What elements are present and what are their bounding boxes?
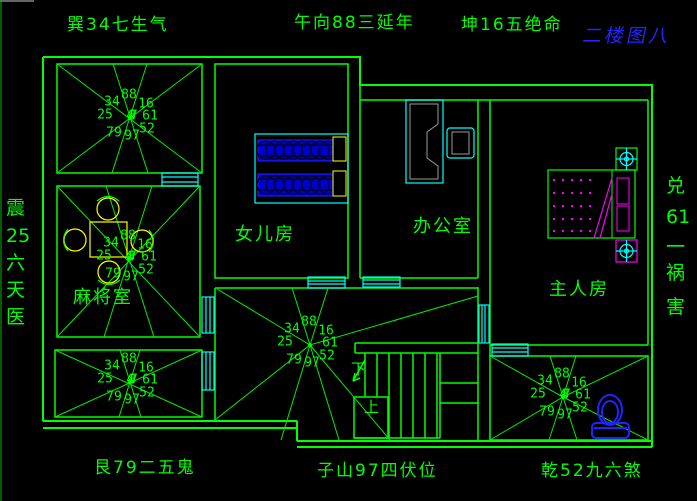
star-number: 97 — [124, 130, 140, 143]
star-number: 52 — [572, 402, 588, 415]
crosshair-icon — [616, 148, 637, 170]
stairs-down-label: 下 — [351, 362, 366, 377]
star-number: 52 — [138, 264, 154, 277]
star-number: 97 — [124, 394, 140, 407]
star-number: 97 — [123, 271, 139, 284]
star-number: 79 — [106, 391, 122, 404]
window-master-left — [479, 305, 489, 343]
room-label-office: 办公室 — [413, 218, 473, 236]
label-zhen-char: 医 — [6, 308, 25, 327]
star-number: 25 — [97, 373, 113, 386]
star-number: 88 — [121, 89, 137, 102]
room-label-master: 主人房 — [549, 281, 609, 299]
room-label-daughter: 女儿房 — [235, 226, 295, 244]
label-dui-char: 一 — [666, 238, 685, 257]
star-center-cluster: 487 — [559, 389, 564, 402]
staircase — [353, 343, 478, 438]
toilet-icon — [592, 395, 629, 438]
stairs-up-label: 上 — [364, 400, 379, 415]
blanket-fold — [594, 178, 612, 238]
master-bed — [548, 170, 635, 238]
nightstand-bottom — [616, 240, 637, 262]
window-hall-left-lower — [202, 352, 214, 390]
viewport-edge — [0, 0, 34, 501]
nightstand-top — [616, 148, 637, 170]
star-number: 79 — [539, 406, 555, 419]
label-zhen-char: 六 — [6, 254, 25, 273]
star-number: 25 — [277, 336, 293, 349]
master-pillow-top — [617, 178, 629, 204]
floor-plan: 巽34七生气 午向88三延年 坤16五绝命 二楼图八 艮79二五鬼 子山97四伏… — [0, 0, 697, 501]
star-number: 52 — [319, 350, 335, 363]
label-zhen-char: 震 — [6, 199, 25, 218]
label-zhen-char: 25 — [6, 227, 30, 246]
star-number: 88 — [120, 230, 136, 243]
label-kun-sector: 坤16五绝命 — [461, 17, 563, 34]
star-number: 79 — [105, 268, 121, 281]
star-number: 25 — [96, 250, 112, 263]
crosshair-icon — [616, 240, 637, 262]
room-label-mahjong: 麻将室 — [73, 289, 133, 307]
star-number: 97 — [557, 409, 573, 422]
star-number: 25 — [530, 388, 546, 401]
star-number: 52 — [139, 123, 155, 136]
star-number: 52 — [139, 387, 155, 400]
star-number: 88 — [554, 368, 570, 381]
label-qian-sector: 乾52九六煞 — [541, 463, 643, 480]
star-number: 79 — [106, 127, 122, 140]
label-wu-facing: 午向88三延年 — [294, 15, 415, 32]
label-xun-sector: 巽34七生气 — [67, 17, 169, 34]
window-top-left-room — [162, 173, 198, 186]
star-number: 79 — [286, 354, 302, 367]
label-zi-sitting: 子山97四伏位 — [317, 463, 438, 480]
star-number: 97 — [304, 357, 320, 370]
label-gen-sector: 艮79二五鬼 — [94, 460, 196, 477]
label-dui-char: 祸 — [666, 264, 685, 283]
window-hall-left-upper — [202, 297, 214, 333]
star-number: 88 — [301, 316, 317, 329]
office-desk — [406, 100, 443, 183]
star-center-cluster: 487 — [125, 251, 130, 264]
pillow-bottom — [333, 171, 346, 196]
label-dui-char: 61 — [666, 208, 690, 227]
star-rays-hall — [215, 288, 478, 440]
bunk-beds — [255, 134, 348, 203]
star-number: 25 — [97, 109, 113, 122]
windows — [162, 173, 528, 390]
star-center-cluster: 487 — [126, 374, 131, 387]
star-center-cluster: 487 — [126, 110, 131, 123]
master-pillow-bottom — [617, 206, 629, 231]
pillow-top — [333, 137, 346, 161]
label-zhen-char: 天 — [6, 281, 25, 300]
star-number: 88 — [121, 353, 137, 366]
label-dui-char: 害 — [666, 298, 685, 317]
window-bathroom — [492, 344, 528, 356]
mattress-dots — [553, 180, 596, 231]
label-dui-char: 兑 — [666, 177, 685, 196]
office-chair — [447, 128, 474, 158]
floor-title: 二楼图八 — [581, 27, 673, 46]
